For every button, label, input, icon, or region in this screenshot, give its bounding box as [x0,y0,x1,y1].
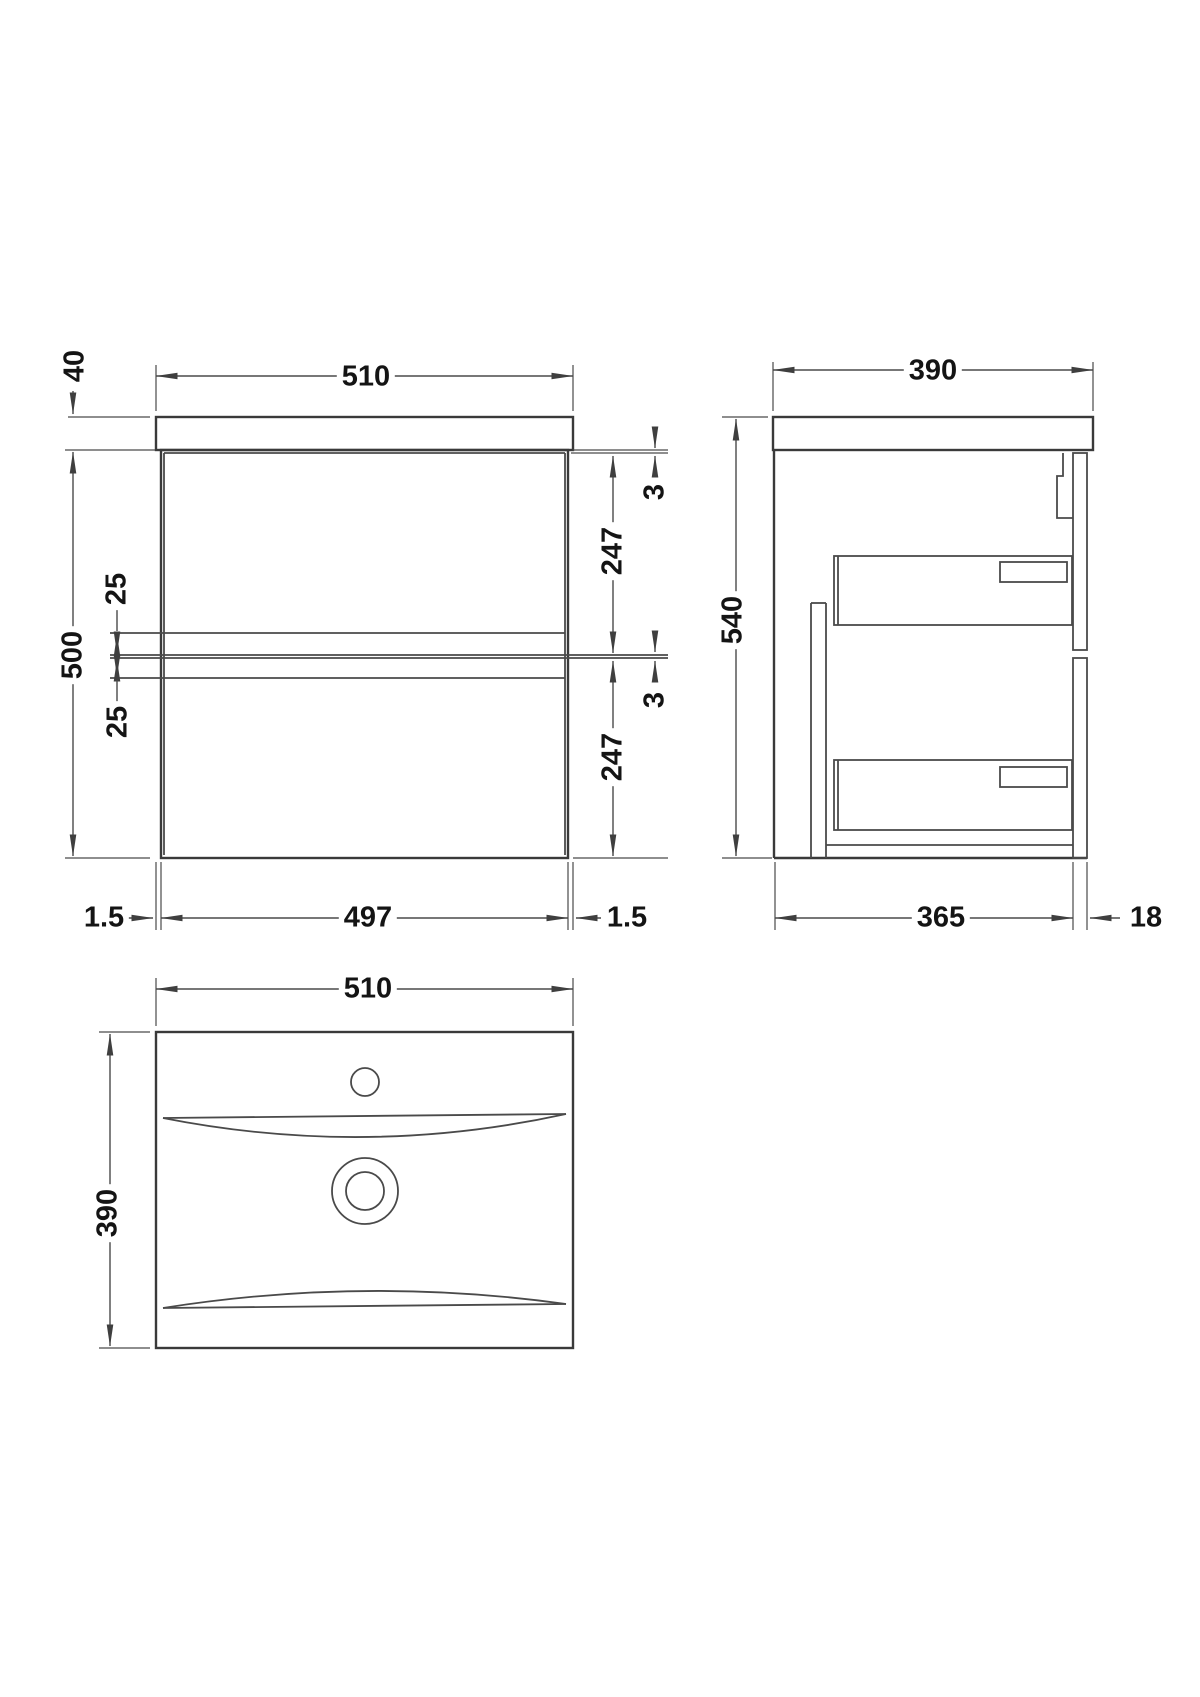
front-cabinet [161,450,568,858]
front-worktop [156,417,573,450]
waste-inner-icon [346,1172,384,1210]
side-drawer1-front [1073,453,1087,650]
front-dim-edge-right: 1.5 [602,903,652,934]
tap-hole-icon [351,1068,379,1096]
drawing-canvas [0,0,1200,1697]
front-dim-inner-width: 497 [339,903,397,934]
front-dim-gap-mid: 3 [640,687,671,713]
front-dim-cabinet-height: 500 [58,626,89,684]
side-dim-overall-height: 540 [718,591,749,649]
side-drawer2-box [834,760,1072,830]
plan-view [99,978,573,1348]
front-dim-drawer2-height: 247 [598,728,629,786]
side-hanging-bracket [1057,453,1073,518]
front-dim-worktop-thickness: 40 [60,345,91,387]
front-dim-gap-top: 3 [640,479,671,505]
front-view [65,365,668,930]
side-dim-front-thickness: 18 [1125,903,1167,934]
basin-back-edge-chord [163,1304,566,1308]
plan-dim-width: 510 [339,974,397,1005]
side-drawer2-front [1073,658,1087,858]
side-drawer2-runner [1000,767,1067,787]
side-drawer1-runner [1000,562,1067,582]
front-dim-reveal-bottom: 25 [103,701,134,743]
side-view [722,362,1120,930]
waste-outer-icon [332,1158,398,1224]
side-dim-body-depth: 365 [912,903,970,934]
front-dim-width-top: 510 [337,362,395,393]
front-dim-drawer1-height: 247 [598,522,629,580]
side-dim-depth-top: 390 [904,356,962,387]
side-worktop [773,417,1093,450]
front-dim-reveal-top: 25 [102,568,133,610]
basin-front-edge-chord [163,1114,566,1118]
plan-dim-depth: 390 [93,1184,124,1242]
front-dim-edge-left: 1.5 [79,903,129,934]
side-drawer1-box [834,556,1072,625]
vanity-technical-drawing: 510 40 500 25 25 3 247 3 247 1.5 497 1.5… [0,0,1200,1697]
